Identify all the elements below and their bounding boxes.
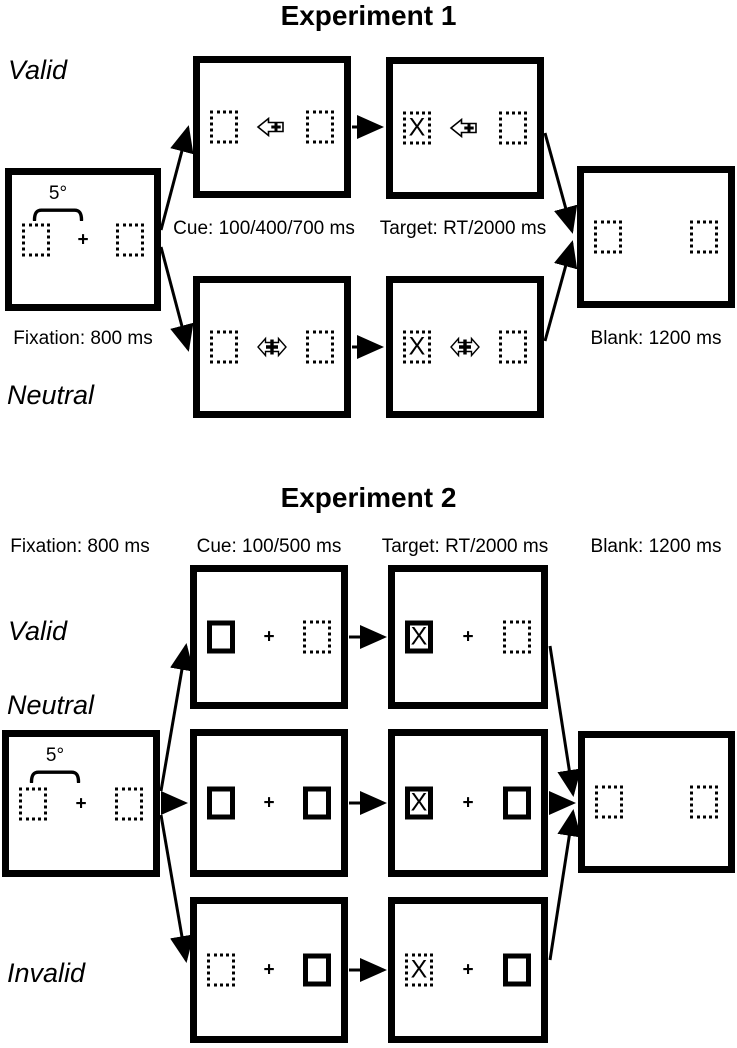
exp2-neutral-cue-panel: + xyxy=(190,729,348,877)
cue-box xyxy=(207,787,235,820)
flow-arrow-exp1-fixation-to-neutral-cue xyxy=(161,247,188,349)
exp1-valid-target-panel: X xyxy=(386,57,544,199)
right-placeholder-box xyxy=(115,787,143,820)
flow-arrow-exp2-valid-target-to-blank xyxy=(550,646,573,794)
exp1-neutral-cue-panel xyxy=(193,276,351,418)
right-placeholder-box xyxy=(690,786,718,819)
exp1-valid-label: Valid xyxy=(8,57,67,84)
target-box: X xyxy=(405,787,433,820)
cue-box xyxy=(207,621,235,654)
cue-box xyxy=(303,787,331,820)
exp2-neutral-target-panel: X + xyxy=(388,729,548,877)
fixation-cross: + xyxy=(263,794,274,813)
exp2-valid-target-panel: X + xyxy=(388,565,548,709)
right-placeholder-box xyxy=(499,112,527,145)
target-x: X xyxy=(411,791,428,816)
right-placeholder-box xyxy=(306,111,334,144)
fixation-cross: + xyxy=(263,961,274,980)
exp2-target-caption: Target: RT/2000 ms xyxy=(375,537,555,558)
flow-arrow-exp2-fixation-to-invalid-cue xyxy=(161,815,186,960)
exp2-valid-cue-panel: + xyxy=(190,565,348,709)
double-arrow-cue-icon xyxy=(449,336,481,358)
right-placeholder-box xyxy=(503,954,531,987)
flow-arrow-exp1-neutral-target-to-blank xyxy=(545,243,572,341)
right-placeholder-box xyxy=(303,621,331,654)
exp2-title: Experiment 2 xyxy=(0,483,737,514)
exp2-invalid-label: Invalid xyxy=(7,960,85,987)
left-placeholder-box xyxy=(22,223,50,256)
exp1-neutral-target-panel: X xyxy=(386,276,544,418)
separation-degree-label: 5° xyxy=(27,746,83,765)
target-box: X xyxy=(403,331,431,364)
left-arrow-cue-icon xyxy=(256,116,288,138)
distance-brace-icon xyxy=(32,208,84,221)
target-box: X xyxy=(403,112,431,145)
right-placeholder-box xyxy=(116,223,144,256)
exp2-invalid-target-panel: X + xyxy=(388,897,548,1043)
exp1-fixation-caption: Fixation: 800 ms xyxy=(5,329,161,350)
fixation-cross: + xyxy=(263,628,274,647)
flow-arrows xyxy=(0,0,737,1048)
exp1-blank-panel xyxy=(577,166,735,308)
cue-box xyxy=(303,954,331,987)
flow-arrow-exp1-fixation-to-valid-cue xyxy=(161,128,188,230)
right-placeholder-box xyxy=(306,331,334,364)
fixation-cross: + xyxy=(75,794,86,813)
fixation-cross: + xyxy=(462,628,473,647)
exp1-fixation-panel: 5° + xyxy=(5,168,161,311)
exp2-neutral-label: Neutral xyxy=(7,692,94,719)
target-x: X xyxy=(411,958,428,983)
exp2-fixation-caption: Fixation: 800 ms xyxy=(2,537,158,558)
flow-arrow-exp2-invalid-target-to-blank xyxy=(550,812,573,960)
flow-arrow-exp1-valid-target-to-blank xyxy=(545,133,572,231)
exp2-invalid-cue-panel: + xyxy=(190,897,348,1043)
exp1-cue-caption: Cue: 100/400/700 ms xyxy=(170,219,358,240)
fixation-cross: + xyxy=(462,794,473,813)
distance-brace-icon xyxy=(29,770,81,783)
target-box: X xyxy=(405,954,433,987)
exp1-target-caption: Target: RT/2000 ms xyxy=(370,219,556,240)
fixation-cross: + xyxy=(77,230,88,249)
left-placeholder-box xyxy=(210,111,238,144)
exp2-blank-caption: Blank: 1200 ms xyxy=(577,537,735,558)
right-placeholder-box xyxy=(499,331,527,364)
fixation-cross: + xyxy=(462,961,473,980)
separation-degree-label: 5° xyxy=(30,184,86,203)
right-placeholder-box xyxy=(503,621,531,654)
exp1-blank-caption: Blank: 1200 ms xyxy=(577,329,735,350)
exp1-neutral-label: Neutral xyxy=(7,382,94,409)
figure-canvas: Experiment 1 Valid Neutral 5° + X xyxy=(0,0,737,1048)
target-x: X xyxy=(409,335,426,360)
exp2-cue-caption: Cue: 100/500 ms xyxy=(190,537,348,558)
exp2-valid-label: Valid xyxy=(8,618,67,645)
target-box: X xyxy=(405,621,433,654)
left-placeholder-box xyxy=(19,787,47,820)
target-x: X xyxy=(409,116,426,141)
left-placeholder-box xyxy=(595,786,623,819)
right-placeholder-box xyxy=(690,221,718,254)
double-arrow-cue-icon xyxy=(256,336,288,358)
exp1-valid-cue-panel xyxy=(193,56,351,198)
right-placeholder-box xyxy=(503,787,531,820)
flow-arrow-exp2-fixation-to-valid-cue xyxy=(161,646,186,791)
left-placeholder-box xyxy=(207,954,235,987)
target-x: X xyxy=(411,625,428,650)
exp1-title: Experiment 1 xyxy=(0,1,737,32)
exp2-fixation-panel: 5° + xyxy=(2,730,160,877)
left-placeholder-box xyxy=(210,331,238,364)
left-placeholder-box xyxy=(594,221,622,254)
left-arrow-cue-icon xyxy=(449,117,481,139)
exp2-blank-panel xyxy=(578,731,735,873)
